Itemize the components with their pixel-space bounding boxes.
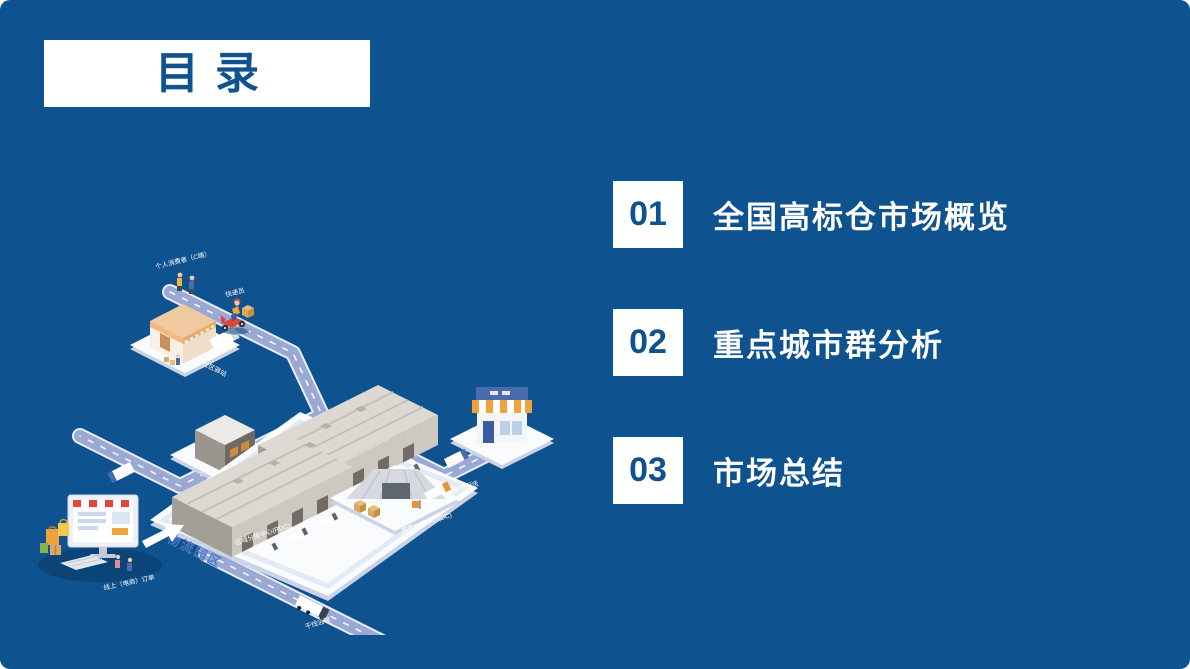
toc-item[interactable]: 02 重点城市群分析 xyxy=(613,309,1010,376)
toc-number-box: 02 xyxy=(613,309,683,376)
toc-item-label: 全国高标仓市场概览 xyxy=(713,192,1010,237)
courier-label: 快递员 xyxy=(224,285,246,299)
toc-item-label: 重点城市群分析 xyxy=(713,320,944,365)
toc-number-box: 01 xyxy=(613,181,683,248)
slide: 目录 01 全国高标仓市场概览 02 重点城市群分析 03 市场总结 xyxy=(0,0,1190,669)
title-box: 目录 xyxy=(44,40,370,107)
toc-item[interactable]: 01 全国高标仓市场概览 xyxy=(613,181,1010,248)
logistics-illustration: 社区驿站 快递分拨中心 物流园区 xyxy=(20,245,565,635)
shopping-bag-icon xyxy=(46,529,59,545)
logistics-illustration-svg: 社区驿站 快递分拨中心 物流园区 xyxy=(20,245,565,635)
toc-item-label: 市场总结 xyxy=(713,448,845,493)
forklift-icon xyxy=(412,501,420,508)
page-title: 目录 xyxy=(155,52,275,96)
toc-item[interactable]: 03 市场总结 xyxy=(613,437,1010,504)
toc-number-box: 03 xyxy=(613,437,683,504)
consumer-label: 个人消费者（C端） xyxy=(154,248,211,270)
consumers: 个人消费者（C端） xyxy=(154,248,211,294)
toc-list: 01 全国高标仓市场概览 02 重点城市群分析 03 市场总结 xyxy=(613,181,1010,565)
